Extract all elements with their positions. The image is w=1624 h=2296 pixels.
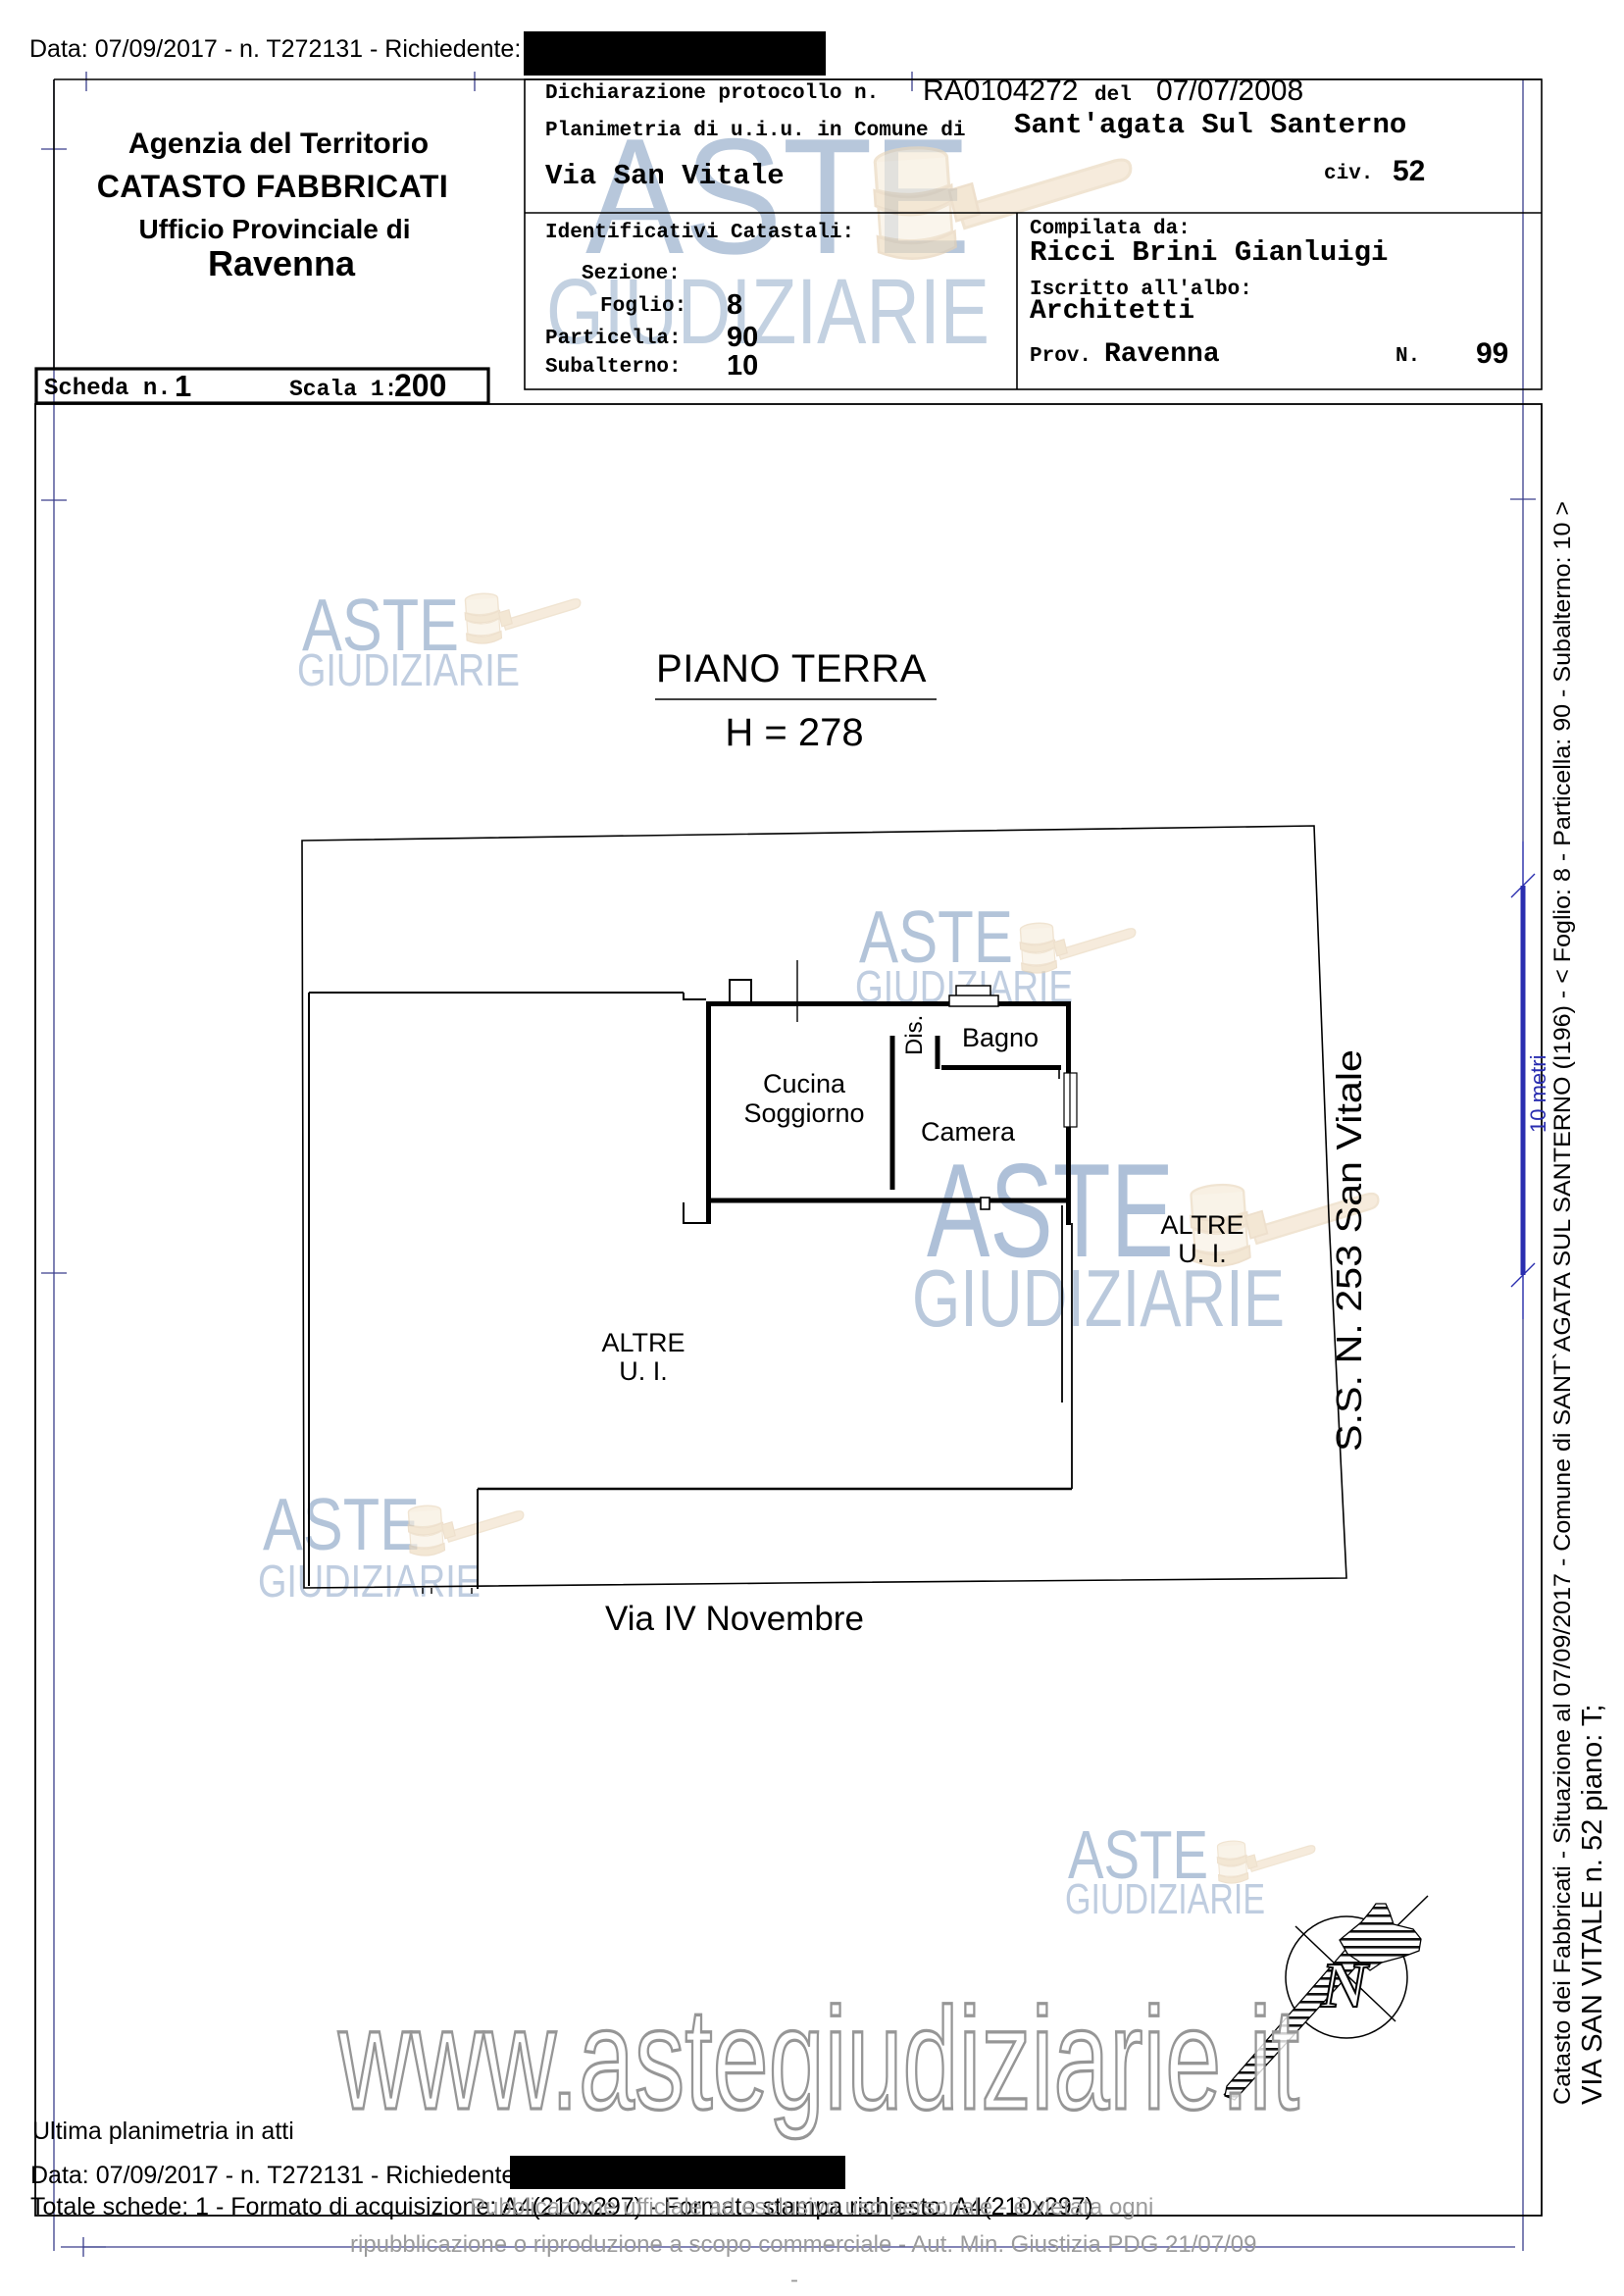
svg-text:www.astegiudiziarie.it: www.astegiudiziarie.it xyxy=(337,1978,1299,2140)
